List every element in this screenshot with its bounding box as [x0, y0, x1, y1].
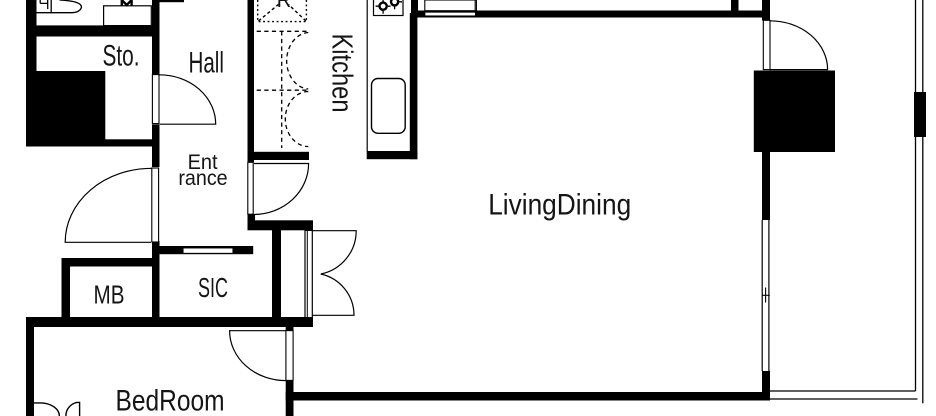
- svg-text:MB: MB: [94, 279, 125, 309]
- svg-text:R: R: [277, 0, 291, 12]
- svg-text:Sto.: Sto.: [103, 39, 140, 72]
- svg-text:LivingDining: LivingDining: [488, 188, 631, 221]
- svg-text:Hall: Hall: [188, 47, 224, 80]
- svg-text:SIC: SIC: [198, 272, 228, 303]
- svg-text:BedRoom: BedRoom: [116, 384, 225, 416]
- svg-text:Kitchen: Kitchen: [325, 34, 357, 113]
- svg-text:rance: rance: [178, 166, 227, 190]
